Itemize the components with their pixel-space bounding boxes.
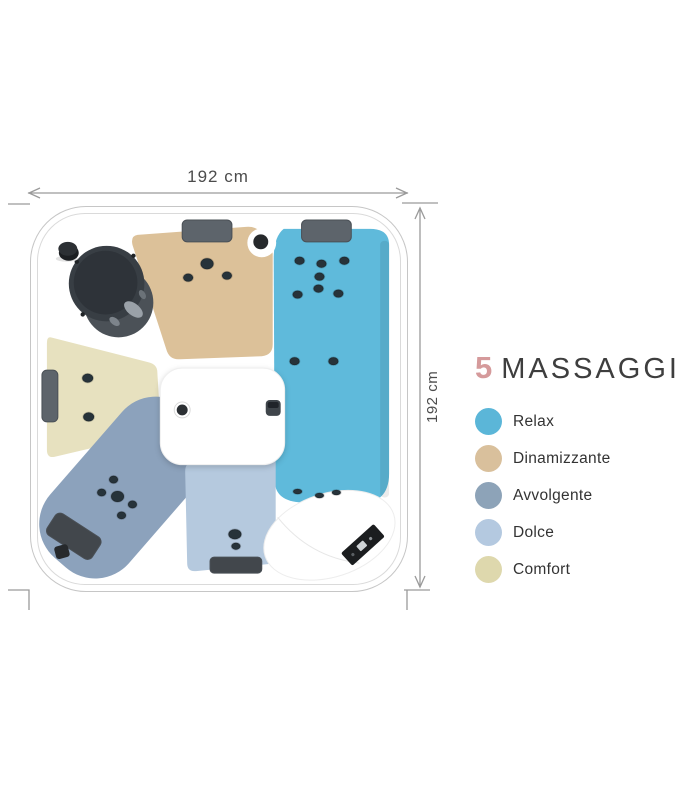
width-dimension-label: 192 cm xyxy=(28,167,408,187)
legend-item-comfort: Comfort xyxy=(475,556,690,583)
headrest-bottom xyxy=(210,557,262,573)
jet xyxy=(183,274,193,282)
arrow-left-icon xyxy=(29,188,40,198)
arrow-down-icon xyxy=(415,576,425,587)
headrest-top-left xyxy=(182,220,232,242)
legend-item-dinamizzante: Dinamizzante xyxy=(475,445,690,472)
legend-label: Dolce xyxy=(513,524,554,542)
zone-dolce xyxy=(185,456,276,572)
jet xyxy=(111,491,124,502)
arrow-up-icon xyxy=(415,208,425,219)
jet xyxy=(222,272,232,280)
jet xyxy=(201,258,214,269)
dinamizzante-color-swatch xyxy=(475,445,502,472)
zone-relax xyxy=(274,229,389,505)
jet xyxy=(293,291,303,299)
zone-relax-shade xyxy=(380,241,389,498)
comfort-color-swatch xyxy=(475,556,502,583)
jet xyxy=(83,412,94,421)
massage-legend: 5 MASSAGGI Relax Dinamizzante Avvolgente… xyxy=(475,350,690,593)
page: 192 cm 192 cm xyxy=(0,0,700,800)
headrest-top-right xyxy=(302,220,352,242)
spa-top-view xyxy=(30,206,408,592)
jet xyxy=(315,493,324,498)
spa-layout xyxy=(31,207,407,591)
jet xyxy=(97,489,106,497)
jet xyxy=(231,543,240,550)
round-jet xyxy=(56,242,79,262)
dolce-color-swatch xyxy=(475,519,502,546)
jet xyxy=(316,260,326,268)
legend-count: 5 xyxy=(475,350,492,386)
notch-jet xyxy=(253,234,268,249)
jet xyxy=(295,257,305,265)
height-dimension-label: 192 cm xyxy=(424,352,446,442)
headrest-left xyxy=(42,370,58,422)
tick-bottom-left xyxy=(8,590,29,610)
island-jet xyxy=(177,404,188,415)
legend-title: MASSAGGI xyxy=(501,353,680,386)
jet xyxy=(332,490,341,495)
legend-label: Avvolgente xyxy=(513,487,592,505)
jet xyxy=(339,257,349,265)
legend-label: Relax xyxy=(513,413,554,431)
jet xyxy=(293,489,302,494)
legend-title-row: 5 MASSAGGI xyxy=(475,350,690,386)
jet xyxy=(290,357,300,365)
legend-item-dolce: Dolce xyxy=(475,519,690,546)
jet xyxy=(128,501,137,509)
relax-color-swatch xyxy=(475,408,502,435)
avvolgente-color-swatch xyxy=(475,482,502,509)
legend-item-avvolgente: Avvolgente xyxy=(475,482,690,509)
island-fitting-top xyxy=(268,402,279,408)
jet xyxy=(328,357,338,365)
jet xyxy=(117,512,126,520)
legend-item-relax: Relax xyxy=(475,408,690,435)
jet xyxy=(228,529,241,539)
jet xyxy=(109,476,118,484)
jet xyxy=(333,290,343,298)
legend-label: Dinamizzante xyxy=(513,450,611,468)
jet xyxy=(314,273,324,281)
center-island xyxy=(160,368,284,464)
jet xyxy=(313,285,323,293)
tick-bottom-right xyxy=(404,590,430,610)
jet xyxy=(82,374,93,383)
arrow-right-icon xyxy=(396,188,407,198)
legend-label: Comfort xyxy=(513,561,570,579)
